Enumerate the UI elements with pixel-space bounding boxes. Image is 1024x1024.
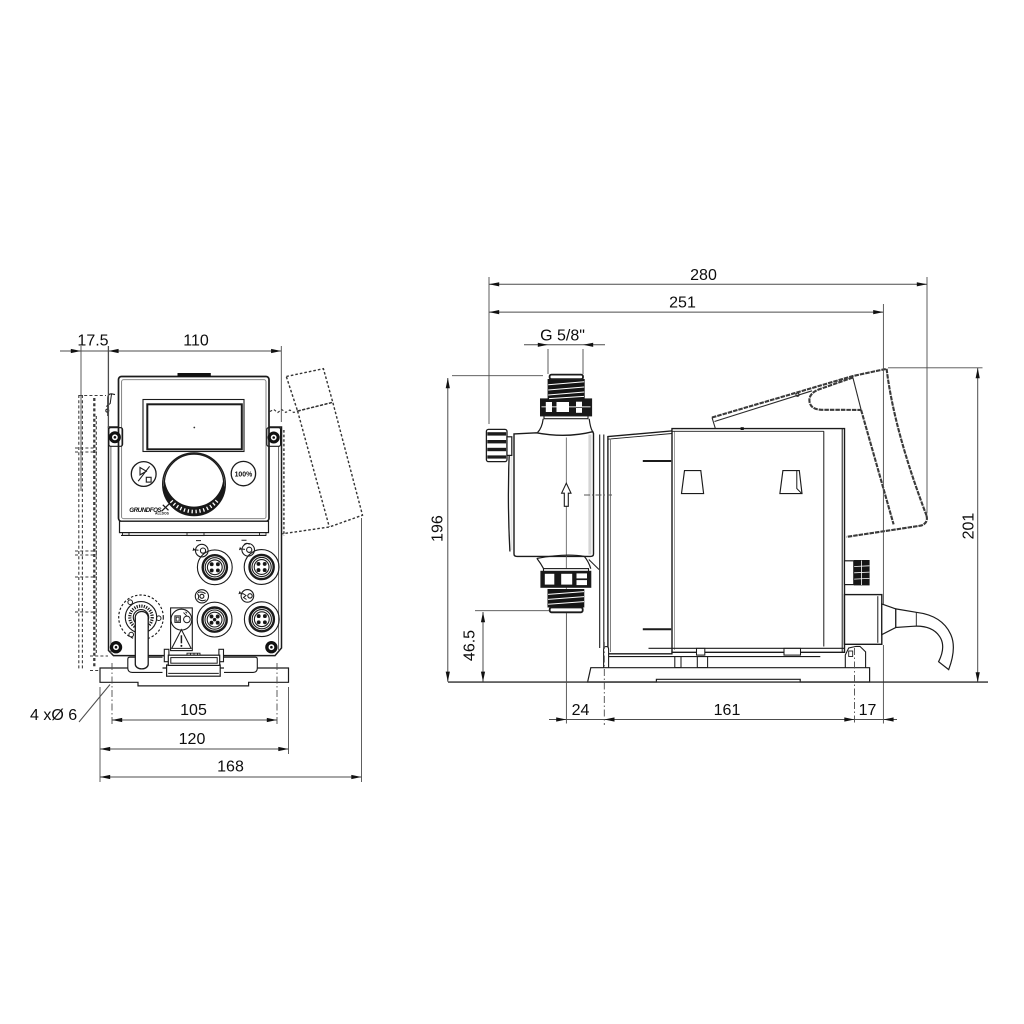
svg-text:46.5: 46.5 xyxy=(462,630,479,661)
svg-text:196: 196 xyxy=(430,515,447,542)
svg-text:24: 24 xyxy=(572,702,590,719)
svg-text:280: 280 xyxy=(690,267,717,284)
svg-text:100%: 100% xyxy=(235,471,253,478)
svg-text:17: 17 xyxy=(859,702,877,719)
svg-text:251: 251 xyxy=(669,295,696,312)
svg-text:120: 120 xyxy=(179,731,206,748)
svg-text:17.5: 17.5 xyxy=(77,333,108,350)
svg-text:105: 105 xyxy=(180,702,207,719)
svg-text:ALLDOS: ALLDOS xyxy=(155,512,170,516)
svg-text:161: 161 xyxy=(714,702,741,719)
svg-text:G 5/8": G 5/8" xyxy=(540,328,585,345)
svg-text:4 xØ 6: 4 xØ 6 xyxy=(30,707,77,724)
svg-text:110: 110 xyxy=(183,333,209,350)
svg-text:168: 168 xyxy=(217,759,244,776)
svg-text:201: 201 xyxy=(961,513,978,540)
